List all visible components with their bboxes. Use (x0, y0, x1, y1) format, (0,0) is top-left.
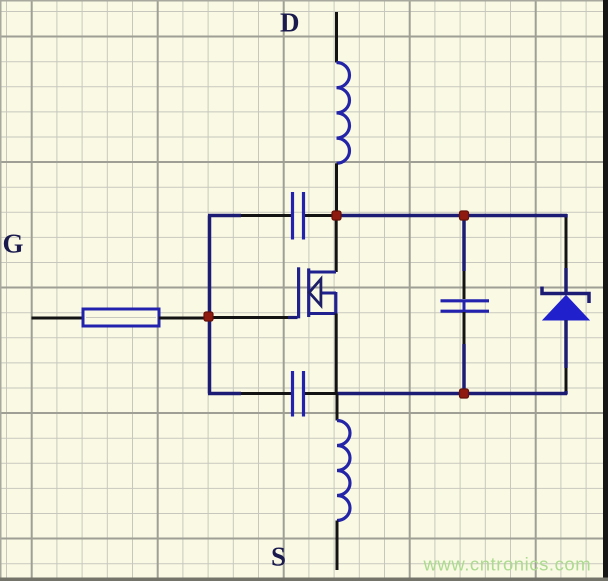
svg-text:www.cntronics.com: www.cntronics.com (423, 554, 592, 575)
svg-text:G: G (3, 229, 24, 259)
svg-text:S: S (271, 542, 286, 572)
svg-text:D: D (280, 8, 300, 38)
